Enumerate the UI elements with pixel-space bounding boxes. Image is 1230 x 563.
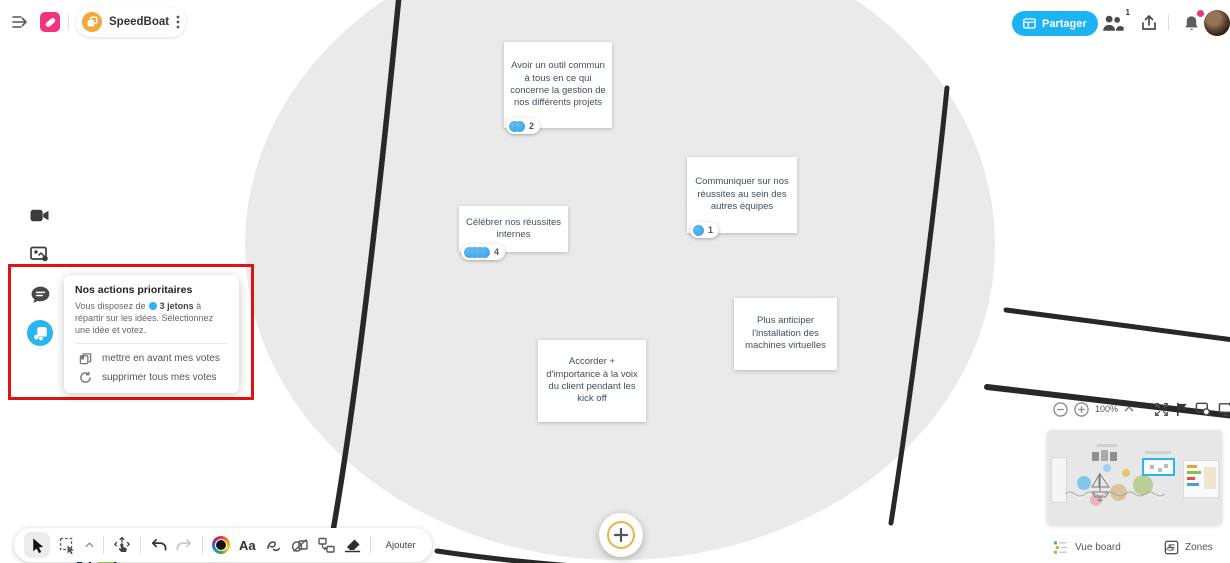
minimap-waterline [1065,490,1165,498]
vote-badge[interactable]: 1 [690,222,719,238]
color-wheel-icon [215,539,227,551]
toolbar-divider [202,536,203,554]
header-divider [1168,14,1169,30]
toolbar-divider [103,536,104,554]
minimap-mini-bar [1187,483,1199,486]
voting-panel: Nos actions prioritaires Vous disposez d… [64,275,239,393]
minimap-sticky [1101,450,1108,461]
chevron-up-icon[interactable] [1124,406,1134,412]
minimap-speck [1164,464,1168,468]
fab-ring [607,521,635,549]
klaxoon-logo[interactable] [40,12,60,32]
clear-votes-icon [79,371,92,384]
export-button[interactable] [1138,11,1160,35]
text-tool[interactable]: Aa [239,538,256,553]
token-dot-icon [149,302,157,310]
undo-button[interactable] [150,538,167,553]
vote-count: 1 [708,225,713,235]
panel-divider [75,343,228,344]
vote-count: 4 [494,247,499,257]
voting-panel-title: Nos actions prioritaires [75,284,228,296]
minimap-sticky [1092,452,1099,461]
add-button[interactable]: Ajouter [380,540,422,551]
vote-tokens [693,225,704,236]
pan-icon [113,536,131,554]
participants-button[interactable]: 1 [1100,12,1126,34]
minimap-sticky [1110,452,1117,461]
minimap[interactable] [1047,430,1222,525]
zoom-controls: 100% [1053,401,1230,417]
connector-tool[interactable] [318,537,335,553]
eraser-icon [344,538,361,553]
display-settings-icon[interactable] [1218,401,1230,417]
minimap-mini-bar [1187,477,1195,480]
vote-badge[interactable]: 2 [506,118,540,134]
zones-control[interactable]: Zones [1164,540,1213,555]
media-icon [30,246,49,262]
idea-note[interactable]: Plus anticiper l'installation des machin… [734,298,837,370]
idea-note[interactable]: Accorder + d'importance à la voix du cli… [538,340,646,422]
shapes-tool[interactable] [291,537,309,553]
participants-icon [1102,14,1124,32]
undo-icon [150,538,167,553]
vote-badge[interactable]: 4 [461,244,505,260]
participants-count: 1 [1126,8,1130,17]
minimap-viewport[interactable] [1142,458,1175,476]
minimap-balloon-yellow [1122,469,1130,477]
minimap-dot [1103,464,1111,472]
zones-icon [1164,540,1179,555]
drawing-toolbar: Aa Ajouter [14,528,432,562]
vote-count: 2 [529,121,534,131]
toolbar-divider [140,536,141,554]
clear-votes-action[interactable]: supprimer tous mes votes [75,368,228,387]
minimap-sailboat [1085,472,1115,504]
eraser-tool[interactable] [344,538,361,553]
zoom-out-icon[interactable] [1053,402,1068,417]
plus-icon [613,527,629,543]
pen-icon [265,537,282,553]
select-tool-expander[interactable] [85,542,94,548]
promote-votes-action[interactable]: mettre en avant mes votes [75,349,228,368]
pen-tool[interactable] [265,537,282,553]
camera-icon [30,208,49,223]
cursor-icon [30,537,45,553]
vote-tokens [509,121,525,132]
klaxoon-logo-glyph [44,17,56,28]
fullscreen-icon[interactable] [1154,402,1169,417]
chat-icon [30,285,51,306]
header-divider [68,14,69,30]
board-icon [82,12,102,32]
board-search-icon[interactable] [1195,401,1212,417]
media-tool[interactable] [30,246,49,267]
minimap-speck [1150,465,1154,469]
minimap-legend-card [1183,460,1219,498]
cursor-tool[interactable] [24,532,50,558]
collapse-sidebar-icon[interactable] [8,12,32,32]
minimap-mini-bar [1187,471,1201,474]
share-button[interactable]: Partager [1012,11,1098,36]
idea-note[interactable]: Avoir un outil commun à tous en ce qui c… [504,42,612,128]
minimap-speck [1158,468,1162,472]
bell-icon [1183,14,1200,33]
board-title-pill[interactable]: SpeedBoat [76,7,186,37]
zoom-in-icon[interactable] [1074,402,1089,417]
view-board-label: Vue board [1075,542,1121,553]
camera-tool[interactable] [30,208,49,228]
pan-tool[interactable] [113,536,131,554]
notification-dot [1197,10,1204,17]
flag-icon[interactable] [1175,402,1189,417]
zones-label: Zones [1185,542,1213,553]
notifications-button[interactable] [1180,11,1202,35]
kebab-menu-icon[interactable] [176,15,180,29]
minimap-bar [1145,451,1171,454]
shapes-icon [291,537,309,553]
export-icon [1140,13,1158,33]
chevron-up-icon [85,542,94,548]
share-board-icon [1023,17,1036,30]
color-picker-tool[interactable] [212,536,230,554]
marquee-select-tool[interactable] [59,537,76,554]
redo-icon [176,538,193,553]
voting-panel-instructions: Vous disposez de3 jetons à répartir sur … [75,300,228,336]
share-label: Partager [1042,18,1087,30]
board-name: SpeedBoat [109,16,176,28]
view-board-icon [1053,540,1068,555]
add-fab[interactable] [599,513,643,557]
marquee-select-icon [59,537,76,554]
view-board-control[interactable]: Vue board [1053,540,1175,555]
minimap-bar [1097,444,1117,447]
toolbar-divider [370,536,371,554]
zoom-level: 100% [1095,404,1118,414]
avatar[interactable] [1204,10,1230,36]
promote-votes-icon [79,352,92,365]
minimap-mini-block [1204,467,1216,489]
chat-tool[interactable] [30,285,51,311]
minimap-mini-bar [1187,465,1197,468]
redo-button[interactable] [176,538,193,553]
vote-tokens [464,247,490,258]
connector-icon [318,537,335,553]
